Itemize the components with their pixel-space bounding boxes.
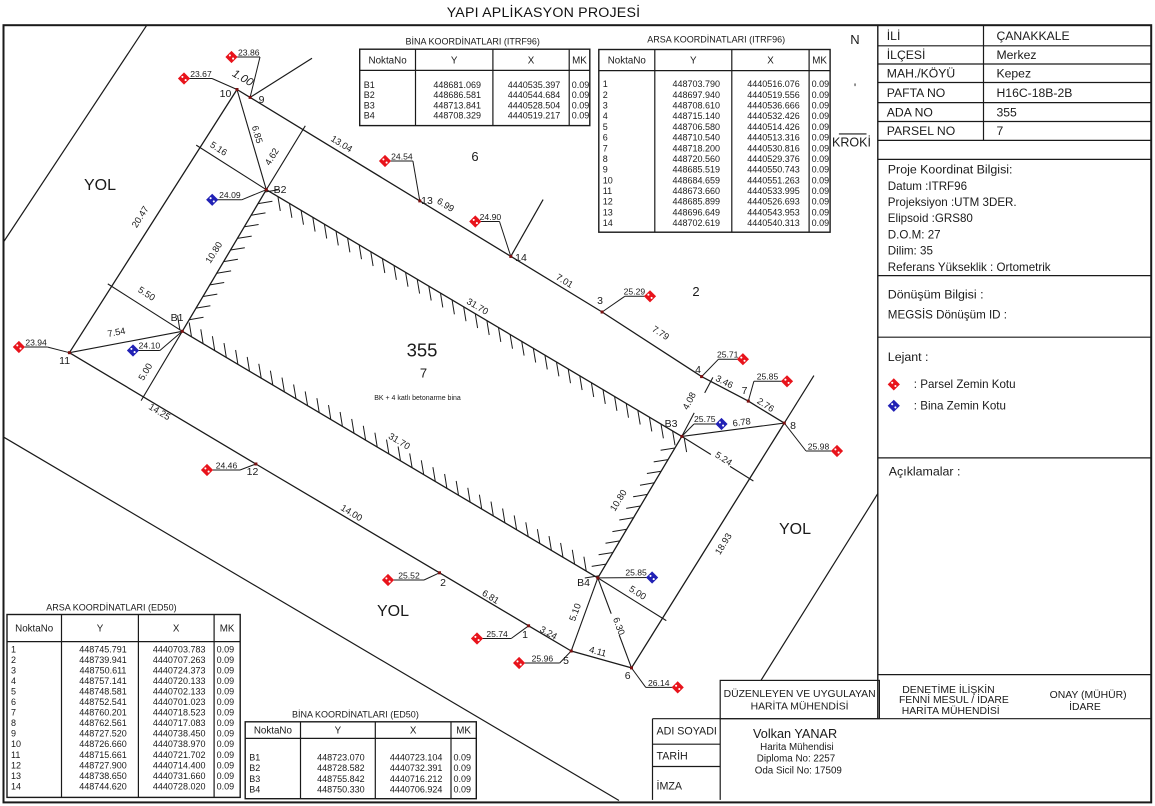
svg-text:448752.541: 448752.541 bbox=[79, 697, 127, 707]
svg-text:Dönüşüm Bilgisi :: Dönüşüm Bilgisi : bbox=[888, 288, 984, 302]
svg-text:NoktaNo: NoktaNo bbox=[369, 55, 408, 66]
svg-text:ÇANAKKALE: ÇANAKKALE bbox=[997, 29, 1070, 43]
svg-text:448723.070: 448723.070 bbox=[317, 752, 365, 762]
svg-text:0.09: 0.09 bbox=[812, 207, 830, 217]
svg-text:4440528.504: 4440528.504 bbox=[508, 100, 561, 110]
svg-text:4440723.104: 4440723.104 bbox=[390, 752, 443, 762]
svg-text:4440532.426: 4440532.426 bbox=[747, 111, 800, 121]
svg-text:5: 5 bbox=[11, 687, 16, 697]
svg-text:0.09: 0.09 bbox=[812, 143, 830, 153]
svg-text:448713.841: 448713.841 bbox=[433, 100, 481, 110]
svg-text:TARİH: TARİH bbox=[657, 750, 688, 763]
svg-text:4440551.263: 4440551.263 bbox=[747, 175, 800, 185]
svg-text:MK: MK bbox=[572, 55, 587, 66]
svg-text:B2: B2 bbox=[364, 90, 375, 100]
svg-text:14: 14 bbox=[515, 252, 527, 264]
svg-text:6.99: 6.99 bbox=[435, 196, 456, 214]
svg-text:HARİTA MÜHENDİSİ: HARİTA MÜHENDİSİ bbox=[902, 704, 1000, 717]
svg-text:PAFTA NO: PAFTA NO bbox=[887, 86, 945, 100]
svg-text:4: 4 bbox=[603, 111, 608, 121]
svg-text:5: 5 bbox=[603, 122, 608, 132]
svg-text:Açıklamalar :: Açıklamalar : bbox=[889, 464, 961, 478]
svg-text:DÜZENLEYEN VE UYGULAYAN: DÜZENLEYEN VE UYGULAYAN bbox=[724, 688, 876, 700]
svg-text:25.85: 25.85 bbox=[625, 568, 647, 578]
svg-text:24.54: 24.54 bbox=[391, 151, 413, 161]
svg-text:0.09: 0.09 bbox=[217, 697, 235, 707]
svg-text:0.09: 0.09 bbox=[217, 729, 235, 739]
svg-text:İDARE: İDARE bbox=[1069, 700, 1101, 713]
svg-text:4440738.970: 4440738.970 bbox=[153, 739, 206, 749]
svg-text:0.09: 0.09 bbox=[812, 175, 830, 185]
svg-text:Lejant :: Lejant : bbox=[888, 350, 929, 364]
svg-text:7: 7 bbox=[742, 385, 748, 397]
svg-text:0.09: 0.09 bbox=[217, 781, 235, 791]
svg-text:4440714.400: 4440714.400 bbox=[153, 760, 206, 770]
svg-text:Projeksiyon :UTM 3DER.: Projeksiyon :UTM 3DER. bbox=[888, 196, 1017, 209]
svg-text:1: 1 bbox=[11, 644, 16, 654]
svg-text:İLİ: İLİ bbox=[887, 29, 901, 43]
svg-text:5.50: 5.50 bbox=[136, 285, 157, 303]
svg-text:25.75: 25.75 bbox=[694, 414, 716, 424]
svg-text:13.04: 13.04 bbox=[329, 134, 354, 155]
svg-text:25.71: 25.71 bbox=[717, 350, 739, 360]
svg-text:6: 6 bbox=[11, 697, 16, 707]
svg-text:448706.580: 448706.580 bbox=[673, 122, 721, 132]
svg-text:448681.069: 448681.069 bbox=[433, 80, 481, 90]
svg-text:8: 8 bbox=[11, 718, 16, 728]
svg-text:0.09: 0.09 bbox=[572, 80, 590, 90]
svg-text:4440718.523: 4440718.523 bbox=[153, 708, 206, 718]
svg-text:4440738.450: 4440738.450 bbox=[153, 729, 206, 739]
svg-text:355: 355 bbox=[997, 105, 1018, 119]
svg-text:4440717.083: 4440717.083 bbox=[153, 718, 206, 728]
svg-text:448738.650: 448738.650 bbox=[79, 771, 127, 781]
svg-text:0.09: 0.09 bbox=[812, 101, 830, 111]
svg-text:B1: B1 bbox=[249, 752, 260, 762]
svg-text:448762.561: 448762.561 bbox=[79, 718, 127, 728]
svg-text:Y: Y bbox=[335, 726, 342, 737]
svg-text:ARSA KOORDİNATLARI (ED50): ARSA KOORDİNATLARI (ED50) bbox=[46, 603, 176, 613]
svg-text:Dilim: 35: Dilim: 35 bbox=[888, 245, 933, 258]
svg-text:Y: Y bbox=[451, 55, 458, 66]
svg-text:9: 9 bbox=[259, 94, 265, 106]
svg-text:B4: B4 bbox=[577, 577, 590, 589]
svg-text:4440707.263: 4440707.263 bbox=[153, 655, 206, 665]
svg-text:4440701.023: 4440701.023 bbox=[153, 697, 206, 707]
svg-text:448744.620: 448744.620 bbox=[79, 781, 127, 791]
svg-text:448739.941: 448739.941 bbox=[79, 655, 127, 665]
svg-text:Harita Mühendisi: Harita Mühendisi bbox=[760, 742, 834, 753]
svg-text:448697.940: 448697.940 bbox=[673, 90, 721, 100]
svg-text:6.30: 6.30 bbox=[611, 616, 627, 636]
svg-text:YOL: YOL bbox=[84, 177, 116, 194]
svg-text:7: 7 bbox=[997, 124, 1004, 138]
svg-text:9: 9 bbox=[11, 729, 16, 739]
svg-text:1: 1 bbox=[522, 629, 528, 641]
svg-text:2: 2 bbox=[11, 655, 16, 665]
svg-text:4.08: 4.08 bbox=[681, 391, 698, 412]
svg-text:B3: B3 bbox=[249, 774, 260, 784]
svg-text:Merkez: Merkez bbox=[997, 48, 1037, 62]
svg-text:BİNA KOORDİNATLARI (ED50): BİNA KOORDİNATLARI (ED50) bbox=[292, 709, 419, 719]
svg-text:4440731.660: 4440731.660 bbox=[153, 771, 206, 781]
svg-text:4440529.376: 4440529.376 bbox=[747, 154, 800, 164]
svg-text:5.00: 5.00 bbox=[136, 361, 154, 382]
svg-text:Y: Y bbox=[97, 624, 104, 635]
svg-text:4440550.743: 4440550.743 bbox=[747, 165, 800, 175]
svg-text:Volkan YANAR: Volkan YANAR bbox=[753, 727, 837, 741]
svg-text:7: 7 bbox=[11, 708, 16, 718]
svg-text:10: 10 bbox=[603, 175, 613, 185]
svg-text:11: 11 bbox=[11, 750, 20, 760]
svg-text:4440702.133: 4440702.133 bbox=[153, 687, 206, 697]
svg-text:13: 13 bbox=[11, 771, 21, 781]
svg-text:ADI SOYADI: ADI SOYADI bbox=[657, 726, 717, 738]
svg-text:PARSEL NO: PARSEL NO bbox=[887, 124, 955, 138]
svg-text:NoktaNo: NoktaNo bbox=[15, 624, 54, 635]
svg-text:448750.330: 448750.330 bbox=[317, 785, 365, 795]
svg-text:2: 2 bbox=[603, 90, 608, 100]
svg-text:: Bina Zemin Kotu: : Bina Zemin Kotu bbox=[914, 400, 1006, 413]
svg-text:23.86: 23.86 bbox=[238, 47, 260, 57]
svg-text:4440540.313: 4440540.313 bbox=[747, 218, 800, 228]
svg-text:4440514.426: 4440514.426 bbox=[747, 122, 800, 132]
svg-text:4440513.316: 4440513.316 bbox=[747, 133, 800, 143]
svg-text:11: 11 bbox=[603, 186, 612, 196]
svg-text:4440720.133: 4440720.133 bbox=[153, 676, 206, 686]
svg-text:4440728.020: 4440728.020 bbox=[153, 781, 206, 791]
svg-text:5.10: 5.10 bbox=[567, 602, 583, 622]
svg-text:448715.661: 448715.661 bbox=[79, 750, 127, 760]
svg-text:448726.660: 448726.660 bbox=[79, 739, 127, 749]
svg-text:0.09: 0.09 bbox=[812, 186, 830, 196]
svg-text:Datum :ITRF96: Datum :ITRF96 bbox=[888, 180, 967, 193]
svg-text:448757.141: 448757.141 bbox=[79, 676, 127, 686]
svg-text:7: 7 bbox=[603, 143, 608, 153]
svg-text:NoktaNo: NoktaNo bbox=[254, 726, 293, 737]
svg-text:B2: B2 bbox=[249, 763, 260, 773]
svg-text:0.09: 0.09 bbox=[812, 79, 830, 89]
svg-text:11: 11 bbox=[59, 355, 70, 367]
svg-text:D.O.M: 27: D.O.M: 27 bbox=[888, 228, 941, 241]
svg-text:4440530.816: 4440530.816 bbox=[747, 143, 800, 153]
svg-text:3: 3 bbox=[11, 665, 16, 675]
svg-text:448750.611: 448750.611 bbox=[80, 665, 127, 675]
svg-text:5: 5 bbox=[563, 655, 569, 667]
svg-text:25.74: 25.74 bbox=[486, 629, 508, 639]
svg-text:Diploma No: 2257: Diploma No: 2257 bbox=[757, 754, 835, 765]
svg-text:448696.649: 448696.649 bbox=[673, 207, 721, 217]
svg-text:24.90: 24.90 bbox=[480, 212, 502, 222]
svg-text:4440544.684: 4440544.684 bbox=[508, 90, 561, 100]
svg-text:Proje Koordinat Bilgisi:: Proje Koordinat Bilgisi: bbox=[888, 163, 1013, 177]
svg-text:3: 3 bbox=[597, 295, 603, 307]
svg-text:0.09: 0.09 bbox=[217, 655, 235, 665]
svg-text:4: 4 bbox=[11, 676, 16, 686]
svg-text:14.25: 14.25 bbox=[147, 402, 172, 423]
svg-text:4440724.373: 4440724.373 bbox=[153, 665, 206, 675]
svg-text:4440716.212: 4440716.212 bbox=[390, 774, 443, 784]
svg-text:23.94: 23.94 bbox=[25, 337, 47, 347]
svg-text:: Parsel Zemin Kotu: : Parsel Zemin Kotu bbox=[914, 378, 1016, 391]
svg-text:YOL: YOL bbox=[779, 521, 811, 538]
svg-text:0.09: 0.09 bbox=[217, 760, 235, 770]
svg-text:DENETİME İLİŞKİN: DENETİME İLİŞKİN bbox=[902, 683, 994, 696]
svg-text:448685.519: 448685.519 bbox=[673, 165, 721, 175]
svg-text:BİNA KOORDİNATLARI (ITRF96): BİNA KOORDİNATLARI (ITRF96) bbox=[406, 37, 540, 47]
svg-text:448708.610: 448708.610 bbox=[673, 101, 721, 111]
svg-text:448718.200: 448718.200 bbox=[673, 143, 721, 153]
svg-text:2: 2 bbox=[440, 577, 446, 589]
svg-text:4440732.391: 4440732.391 bbox=[390, 763, 443, 773]
svg-text:0.09: 0.09 bbox=[217, 676, 235, 686]
svg-text:0.09: 0.09 bbox=[812, 133, 830, 143]
svg-text:24.09: 24.09 bbox=[219, 190, 241, 200]
svg-text:ADA NO: ADA NO bbox=[887, 105, 933, 119]
svg-text:X: X bbox=[173, 624, 180, 635]
svg-text:0.09: 0.09 bbox=[572, 100, 590, 110]
svg-text:448748.581: 448748.581 bbox=[79, 687, 127, 697]
svg-text:ARSA KOORDİNATLARI (ITRF96): ARSA KOORDİNATLARI (ITRF96) bbox=[647, 35, 785, 45]
svg-text:B1: B1 bbox=[364, 80, 375, 90]
svg-text:Referans Yükseklik : Ortometri: Referans Yükseklik : Ortometrik bbox=[888, 261, 1051, 274]
svg-text:4440706.924: 4440706.924 bbox=[390, 785, 443, 795]
svg-text:0.09: 0.09 bbox=[217, 771, 235, 781]
svg-text:Kepez: Kepez bbox=[997, 67, 1032, 81]
svg-text:448760.201: 448760.201 bbox=[79, 708, 127, 718]
svg-text:25.29: 25.29 bbox=[624, 287, 646, 297]
svg-text:10: 10 bbox=[220, 88, 232, 100]
svg-text:MK: MK bbox=[220, 624, 235, 635]
svg-text:7.54: 7.54 bbox=[107, 326, 127, 339]
svg-text:0.09: 0.09 bbox=[812, 154, 830, 164]
svg-text:14: 14 bbox=[603, 218, 613, 228]
svg-text:448727.900: 448727.900 bbox=[79, 760, 127, 770]
svg-text:4440721.702: 4440721.702 bbox=[153, 750, 206, 760]
svg-text:X: X bbox=[767, 56, 774, 67]
svg-text:0.09: 0.09 bbox=[812, 90, 830, 100]
svg-text:0.09: 0.09 bbox=[812, 165, 830, 175]
svg-text:12: 12 bbox=[11, 760, 21, 770]
svg-text:X: X bbox=[528, 55, 535, 66]
svg-text:0.09: 0.09 bbox=[454, 785, 472, 795]
svg-text:0.09: 0.09 bbox=[217, 708, 235, 718]
svg-text:448685.899: 448685.899 bbox=[673, 197, 721, 207]
svg-text:5.00: 5.00 bbox=[627, 584, 648, 602]
svg-text:FENNİ MESUL / İDARE: FENNİ MESUL / İDARE bbox=[899, 693, 1009, 706]
svg-text:Y: Y bbox=[690, 56, 697, 67]
svg-text:448745.791: 448745.791 bbox=[79, 644, 127, 654]
svg-text:1: 1 bbox=[603, 79, 608, 89]
svg-text:448708.329: 448708.329 bbox=[433, 111, 481, 121]
svg-text:448684.659: 448684.659 bbox=[673, 175, 721, 185]
svg-text:B4: B4 bbox=[364, 111, 375, 121]
svg-text:8: 8 bbox=[603, 154, 608, 164]
svg-text:448727.520: 448727.520 bbox=[79, 729, 127, 739]
svg-text:10.80: 10.80 bbox=[203, 240, 224, 265]
svg-text:448673.660: 448673.660 bbox=[673, 186, 721, 196]
svg-text:0.09: 0.09 bbox=[217, 644, 235, 654]
svg-text:20.47: 20.47 bbox=[130, 204, 151, 229]
svg-text:': ' bbox=[854, 81, 856, 95]
svg-text:3.24: 3.24 bbox=[538, 624, 559, 642]
svg-text:26.14: 26.14 bbox=[648, 678, 670, 688]
svg-text:25.96: 25.96 bbox=[532, 653, 554, 663]
svg-text:448710.540: 448710.540 bbox=[673, 133, 721, 143]
svg-text:13: 13 bbox=[421, 195, 433, 207]
svg-text:4440519.217: 4440519.217 bbox=[508, 111, 561, 121]
svg-text:0.09: 0.09 bbox=[217, 739, 235, 749]
svg-text:B1: B1 bbox=[171, 312, 184, 324]
svg-text:4440526.693: 4440526.693 bbox=[747, 197, 800, 207]
svg-text:7.01: 7.01 bbox=[554, 272, 575, 290]
svg-text:7: 7 bbox=[420, 366, 427, 381]
svg-text:448686.581: 448686.581 bbox=[433, 90, 481, 100]
svg-text:2: 2 bbox=[692, 284, 699, 299]
svg-text:0.09: 0.09 bbox=[454, 774, 472, 784]
svg-text:Oda Sicil No: 17509: Oda Sicil No: 17509 bbox=[755, 766, 842, 777]
svg-text:355: 355 bbox=[407, 340, 438, 361]
svg-text:4440535.397: 4440535.397 bbox=[508, 80, 561, 90]
svg-text:448720.560: 448720.560 bbox=[673, 154, 721, 164]
svg-text:N: N bbox=[850, 32, 859, 47]
svg-text:ONAY (MÜHÜR): ONAY (MÜHÜR) bbox=[1050, 689, 1127, 701]
svg-text:X: X bbox=[410, 726, 417, 737]
svg-text:KROKİ: KROKİ bbox=[832, 136, 871, 150]
svg-text:0.09: 0.09 bbox=[217, 665, 235, 675]
svg-text:0.09: 0.09 bbox=[454, 763, 472, 773]
svg-text:14: 14 bbox=[11, 781, 21, 791]
svg-text:448728.582: 448728.582 bbox=[317, 763, 365, 773]
svg-text:31.70: 31.70 bbox=[387, 431, 412, 452]
svg-text:24.46: 24.46 bbox=[216, 460, 238, 470]
svg-text:4.62: 4.62 bbox=[263, 146, 281, 167]
svg-text:B3: B3 bbox=[364, 100, 375, 110]
svg-text:25.52: 25.52 bbox=[398, 570, 420, 580]
svg-text:H16C-18B-2B: H16C-18B-2B bbox=[997, 86, 1073, 100]
svg-text:0.09: 0.09 bbox=[812, 122, 830, 132]
svg-text:0.09: 0.09 bbox=[454, 752, 472, 762]
svg-text:5.24: 5.24 bbox=[713, 450, 734, 468]
svg-text:3: 3 bbox=[603, 101, 608, 111]
svg-text:31.70: 31.70 bbox=[465, 296, 490, 317]
svg-text:İLÇESİ: İLÇESİ bbox=[887, 48, 926, 62]
svg-text:6: 6 bbox=[603, 133, 608, 143]
svg-text:7.79: 7.79 bbox=[650, 324, 671, 342]
svg-text:0.09: 0.09 bbox=[812, 197, 830, 207]
svg-text:İMZA: İMZA bbox=[657, 780, 683, 793]
svg-text:0.09: 0.09 bbox=[572, 90, 590, 100]
svg-text:B4: B4 bbox=[249, 785, 260, 795]
svg-text:4440543.953: 4440543.953 bbox=[747, 207, 800, 217]
svg-text:0.09: 0.09 bbox=[217, 687, 235, 697]
svg-text:4440516.076: 4440516.076 bbox=[747, 79, 800, 89]
svg-text:448715.140: 448715.140 bbox=[673, 111, 721, 121]
svg-text:0.09: 0.09 bbox=[812, 218, 830, 228]
svg-text:MK: MK bbox=[812, 56, 827, 67]
svg-text:6: 6 bbox=[471, 149, 478, 164]
svg-text:4440703.783: 4440703.783 bbox=[153, 644, 206, 654]
svg-text:MEGSİS Dönüşüm ID :: MEGSİS Dönüşüm ID : bbox=[888, 309, 1007, 322]
svg-text:HARİTA MÜHENDİSİ: HARİTA MÜHENDİSİ bbox=[751, 699, 849, 712]
svg-text:448702.619: 448702.619 bbox=[673, 218, 721, 228]
svg-text:YOL: YOL bbox=[377, 603, 409, 620]
svg-text:25.98: 25.98 bbox=[808, 441, 830, 451]
svg-text:12: 12 bbox=[247, 466, 259, 478]
svg-text:0.09: 0.09 bbox=[217, 718, 235, 728]
svg-text:Elipsoid :GRS80: Elipsoid :GRS80 bbox=[888, 212, 973, 225]
svg-text:12: 12 bbox=[603, 197, 613, 207]
svg-text:25.85: 25.85 bbox=[757, 372, 779, 382]
svg-text:4440536.666: 4440536.666 bbox=[747, 101, 800, 111]
svg-text:448755.842: 448755.842 bbox=[317, 774, 365, 784]
svg-text:448703.790: 448703.790 bbox=[673, 79, 721, 89]
svg-text:4440519.556: 4440519.556 bbox=[747, 90, 800, 100]
svg-text:MAH./KÖYÜ: MAH./KÖYÜ bbox=[887, 67, 955, 81]
svg-text:13: 13 bbox=[603, 207, 613, 217]
svg-text:6.78: 6.78 bbox=[732, 416, 751, 428]
svg-text:6: 6 bbox=[625, 670, 631, 682]
svg-text:10: 10 bbox=[11, 739, 21, 749]
svg-text:0.09: 0.09 bbox=[217, 750, 235, 760]
svg-text:0.09: 0.09 bbox=[812, 111, 830, 121]
svg-text:10.80: 10.80 bbox=[608, 488, 629, 513]
svg-text:0.09: 0.09 bbox=[572, 111, 590, 121]
svg-text:4440533.995: 4440533.995 bbox=[747, 186, 800, 196]
svg-text:24.10: 24.10 bbox=[139, 341, 161, 351]
svg-text:B3: B3 bbox=[665, 418, 678, 430]
svg-text:1.00: 1.00 bbox=[230, 68, 256, 90]
svg-text:MK: MK bbox=[456, 726, 471, 737]
svg-text:8: 8 bbox=[790, 420, 796, 432]
svg-text:BK + 4 katlı betonarme bina: BK + 4 katlı betonarme bina bbox=[374, 395, 461, 402]
svg-text:4: 4 bbox=[695, 364, 701, 376]
svg-text:NoktaNo: NoktaNo bbox=[608, 56, 647, 67]
svg-text:18.93: 18.93 bbox=[713, 531, 734, 556]
svg-text:9: 9 bbox=[603, 165, 608, 175]
svg-text:B2: B2 bbox=[274, 184, 287, 196]
svg-text:23.67: 23.67 bbox=[190, 69, 212, 79]
